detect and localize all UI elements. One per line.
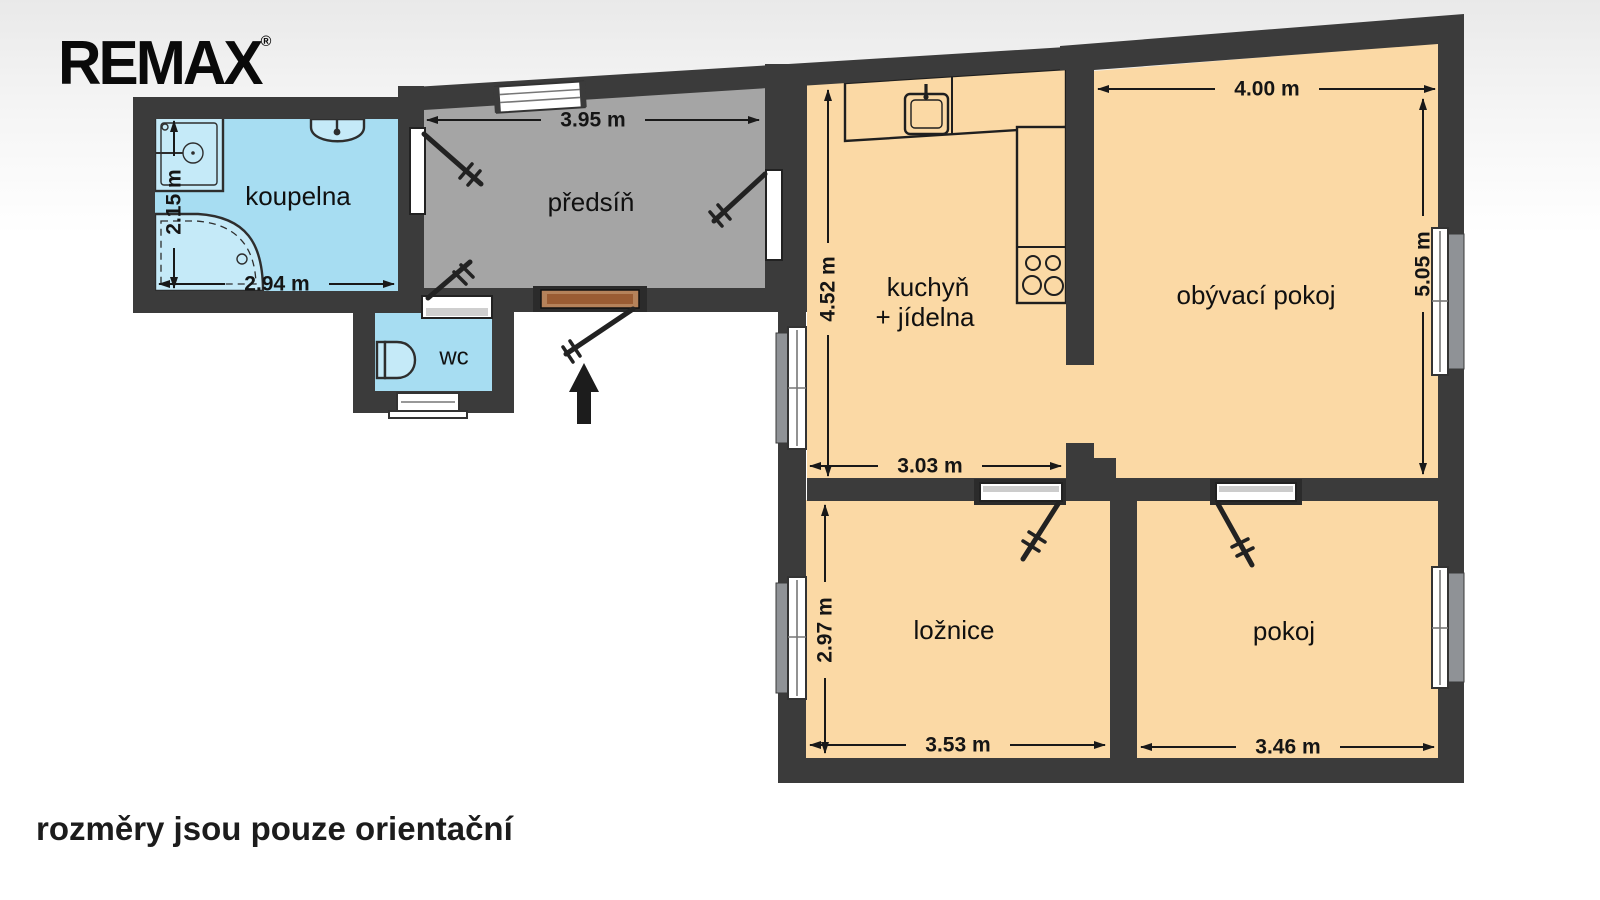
room-label-wc: wc (438, 344, 468, 371)
toilet-icon (377, 342, 415, 378)
disclaimer-text: rozměry jsou pouze orientační (36, 810, 513, 848)
dim-label: 3.53 m (925, 734, 990, 757)
dim-label: 2.97 m (814, 597, 837, 662)
dim-label: 3.03 m (897, 455, 962, 478)
wall (1066, 443, 1094, 481)
kitchen-counter-right (1017, 127, 1066, 303)
wc-window (389, 393, 467, 418)
entrance-door (533, 286, 647, 424)
room-label-pokoj: pokoj (1253, 616, 1315, 646)
loznice-left-window (776, 577, 806, 699)
room-label-loznice: ložnice (914, 615, 995, 645)
dim-label: 4.00 m (1234, 78, 1299, 101)
wall (133, 97, 155, 313)
wall (778, 758, 1464, 783)
wall (1094, 458, 1116, 481)
dim-label: 5.05 m (1412, 231, 1435, 296)
room-label-obyvaci-pokoj: obývací pokoj (1177, 280, 1336, 310)
room-obyvaci-pokoj-floor (1094, 43, 1440, 480)
floor-plan: 2.15 m 2.94 m 3.95 m 4.52 m 3.03 m (0, 0, 1600, 900)
dim-label: 3.46 m (1255, 736, 1320, 759)
room-label-predsin: předsíň (548, 187, 635, 217)
dim-label: 2.94 m (244, 273, 309, 296)
wall (133, 97, 424, 119)
room-label-kuchyn-line1: kuchyň (887, 272, 969, 302)
wall (1110, 478, 1137, 783)
room-label-kuchyn-line2: + jídelna (875, 302, 975, 332)
page: REMAX® (0, 0, 1600, 900)
living-room-right-window (1432, 228, 1464, 375)
dim-label: 3.95 m (560, 109, 625, 132)
entrance-arrow-icon (569, 363, 599, 424)
room-label-koupelna: koupelna (245, 181, 351, 211)
dim-label: 2.15 m (163, 169, 186, 234)
wc-fixtures (377, 342, 415, 378)
dim-label: 4.52 m (817, 256, 840, 321)
wall (1066, 47, 1094, 365)
bathroom-sink-icon (311, 119, 364, 141)
kitchen-left-window (776, 327, 806, 449)
kitchen-living-passage-floor (1062, 363, 1098, 443)
pokoj-right-window (1432, 567, 1464, 688)
